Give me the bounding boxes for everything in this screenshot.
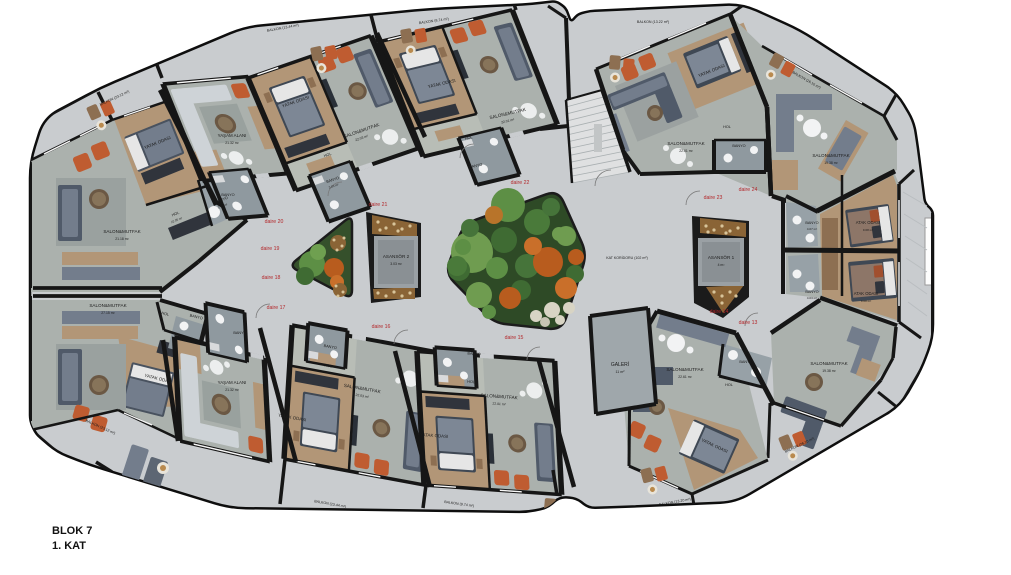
svg-text:9.68 m²: 9.68 m² [863, 228, 873, 232]
svg-text:daire 23: daire 23 [704, 195, 723, 201]
svg-text:ASANSÖR 2: ASANSÖR 2 [383, 253, 410, 259]
svg-text:BALKON (13.22 m²): BALKON (13.22 m²) [637, 20, 669, 24]
svg-text:ATAK ODASI: ATAK ODASI [854, 291, 879, 296]
svg-text:4.03 m²: 4.03 m² [807, 296, 817, 300]
svg-text:SALON&MUTFAK: SALON&MUTFAK [89, 303, 127, 308]
svg-text:3.03 m²: 3.03 m² [390, 262, 402, 266]
svg-text:22.01 m²: 22.01 m² [679, 149, 693, 153]
svg-text:daire 15: daire 15 [505, 335, 524, 341]
svg-text:daire 17: daire 17 [267, 305, 286, 311]
svg-text:GALERİ: GALERİ [611, 361, 629, 368]
svg-text:4.07 m²: 4.07 m² [807, 227, 817, 231]
svg-text:21.32 m²: 21.32 m² [225, 388, 239, 392]
svg-text:daire 14: daire 14 [710, 309, 729, 315]
svg-text:daire 22: daire 22 [511, 180, 530, 186]
svg-text:daire 18: daire 18 [262, 275, 281, 281]
svg-text:BANYO: BANYO [732, 144, 745, 148]
svg-text:SALON&MUTFAK: SALON&MUTFAK [666, 367, 704, 372]
svg-text:19.38 m²: 19.38 m² [822, 369, 836, 373]
svg-text:21.32 m²: 21.32 m² [225, 141, 239, 145]
svg-text:HOL: HOL [725, 383, 733, 387]
svg-text:SALON&MUTFAK: SALON&MUTFAK [667, 141, 705, 146]
svg-text:BANYO: BANYO [233, 331, 246, 335]
svg-text:19.38 m²: 19.38 m² [824, 161, 838, 165]
svg-text:HOL: HOL [723, 125, 731, 129]
svg-text:daire 21: daire 21 [369, 202, 388, 208]
svg-text:YAŞAM ALANI: YAŞAM ALANI [218, 380, 247, 385]
svg-text:daire 13: daire 13 [739, 320, 758, 326]
svg-text:SALON&MUTFAK: SALON&MUTFAK [810, 361, 848, 366]
svg-text:SALON&MUTFAK: SALON&MUTFAK [812, 153, 850, 158]
svg-text:BANYO: BANYO [805, 221, 818, 225]
svg-text:4 m²: 4 m² [718, 263, 726, 267]
svg-text:SALON&MUTFAK: SALON&MUTFAK [103, 229, 141, 234]
svg-text:ASANSÖR 1: ASANSÖR 1 [708, 254, 735, 260]
svg-text:BANYO: BANYO [805, 290, 818, 294]
svg-text:11 m²: 11 m² [616, 370, 626, 374]
svg-text:27.15 m²: 27.15 m² [101, 311, 115, 315]
svg-text:BANYO: BANYO [739, 360, 752, 364]
svg-text:daire 19: daire 19 [261, 246, 280, 252]
svg-text:21.18 m²: 21.18 m² [115, 237, 129, 241]
svg-text:ATAK ODASI: ATAK ODASI [856, 220, 881, 225]
svg-text:YAŞAM ALANI: YAŞAM ALANI [218, 133, 247, 138]
svg-text:9.68 m²: 9.68 m² [861, 299, 871, 303]
svg-text:BLOK 7: BLOK 7 [52, 525, 92, 537]
svg-text:daire 24: daire 24 [739, 187, 758, 193]
svg-text:1. KAT: 1. KAT [52, 540, 86, 552]
svg-text:22.61 m²: 22.61 m² [678, 375, 692, 379]
svg-text:KAT KORİDORU (102 m²): KAT KORİDORU (102 m²) [606, 255, 648, 260]
svg-text:HOL: HOL [467, 380, 475, 385]
svg-text:daire 20: daire 20 [265, 219, 284, 225]
svg-text:daire 16: daire 16 [372, 324, 391, 330]
svg-text:BANYO: BANYO [221, 193, 234, 197]
